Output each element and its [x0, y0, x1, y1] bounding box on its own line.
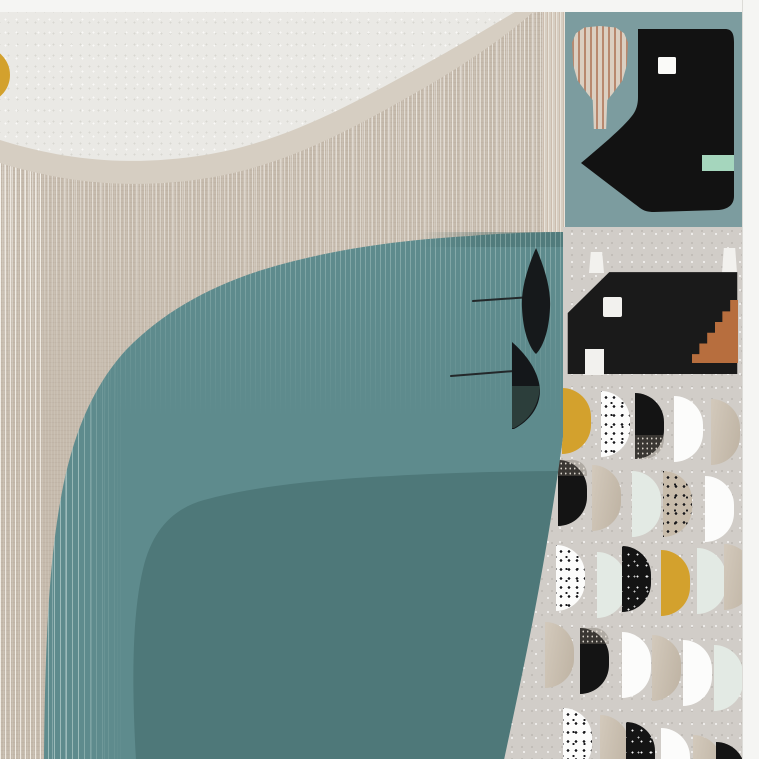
half-moon-dotted-white: [556, 545, 585, 611]
right-margin: [742, 0, 759, 759]
half-moon-beige: [545, 622, 574, 688]
half-moon-black-grain-top: [558, 460, 587, 526]
seed-pod-lens: [522, 248, 550, 354]
half-moon-mint: [714, 645, 743, 711]
top-margin: [0, 0, 759, 12]
half-moon-beige: [652, 635, 681, 701]
half-moon-white: [705, 476, 734, 542]
half-moon-black-grain-top: [580, 628, 609, 694]
half-moon-black: [716, 742, 745, 759]
half-moon-mint: [632, 471, 661, 537]
half-moon-black-grain-bottom: [635, 393, 664, 459]
half-moon-mustard: [562, 388, 591, 454]
half-moon-beige: [711, 399, 740, 465]
half-moon-dotted-white: [601, 391, 630, 457]
half-moon-dotted-white: [563, 708, 592, 759]
bird-mint-patch: [702, 155, 734, 171]
half-moon-dotted-beige: [663, 471, 692, 537]
artwork-canvas: [0, 0, 759, 759]
half-moon-white: [674, 396, 703, 462]
half-moon-beige: [600, 715, 629, 759]
half-moon-white: [683, 640, 712, 706]
bird-window: [658, 57, 676, 74]
half-moon-beige: [592, 465, 621, 531]
half-moon-mint: [697, 548, 726, 614]
half-moon-black-starry: [626, 722, 655, 759]
half-moon-mustard: [661, 550, 690, 616]
abstract-bird-shape: [581, 29, 734, 212]
half-moon-white: [622, 632, 651, 698]
half-moon-black-starry: [622, 546, 651, 612]
half-moon-white: [661, 728, 690, 759]
